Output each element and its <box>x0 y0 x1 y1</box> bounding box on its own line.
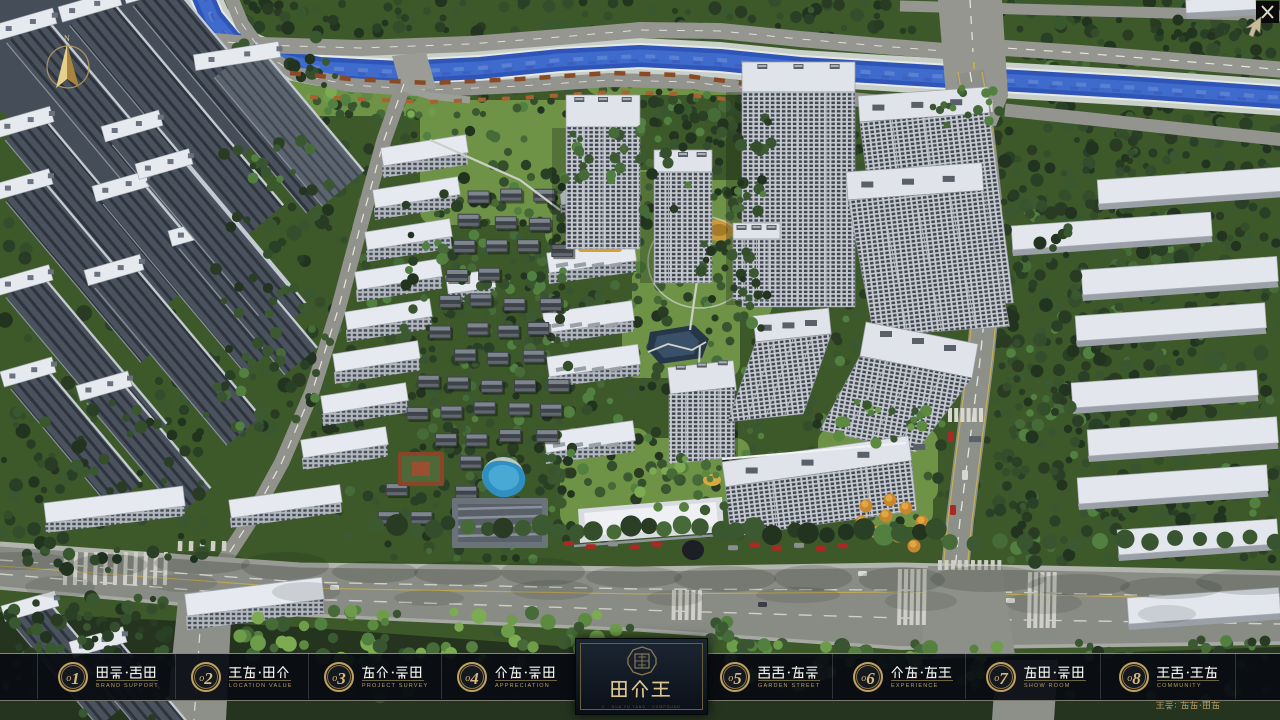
svg-text:N: N <box>64 34 70 43</box>
